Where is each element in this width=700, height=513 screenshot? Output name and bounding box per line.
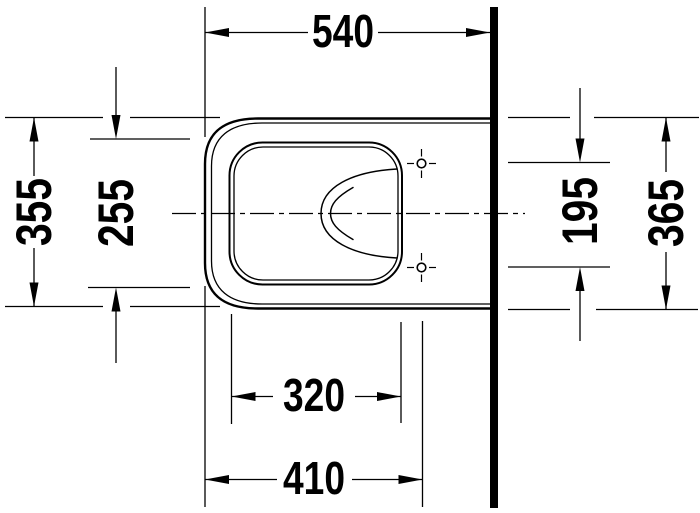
dim-left-inner-255: 255: [88, 67, 190, 363]
fixing-hole-bottom-icon: [407, 253, 436, 282]
dim-label-bottom-bowl: 320: [283, 369, 345, 421]
dim-bottom-bowl-320: 320: [232, 314, 402, 424]
fixing-hole-top-icon: [407, 149, 436, 178]
dim-top-540: 540: [205, 5, 490, 137]
dim-right-holes-195: 195: [508, 88, 610, 341]
dim-label-top: 540: [312, 5, 374, 57]
dimension-drawing-canvas: 540 355 255 195: [0, 0, 700, 513]
dim-label-right-holes: 195: [552, 177, 608, 245]
dim-label-left-inner: 255: [88, 179, 144, 247]
dim-label-left-outer: 355: [6, 178, 62, 246]
dim-label-bottom-holes: 410: [283, 452, 345, 504]
toilet-top-view-drawing: 540 355 255 195: [0, 0, 700, 513]
dim-label-right-outer: 365: [638, 179, 694, 247]
wall-line: [490, 7, 498, 508]
